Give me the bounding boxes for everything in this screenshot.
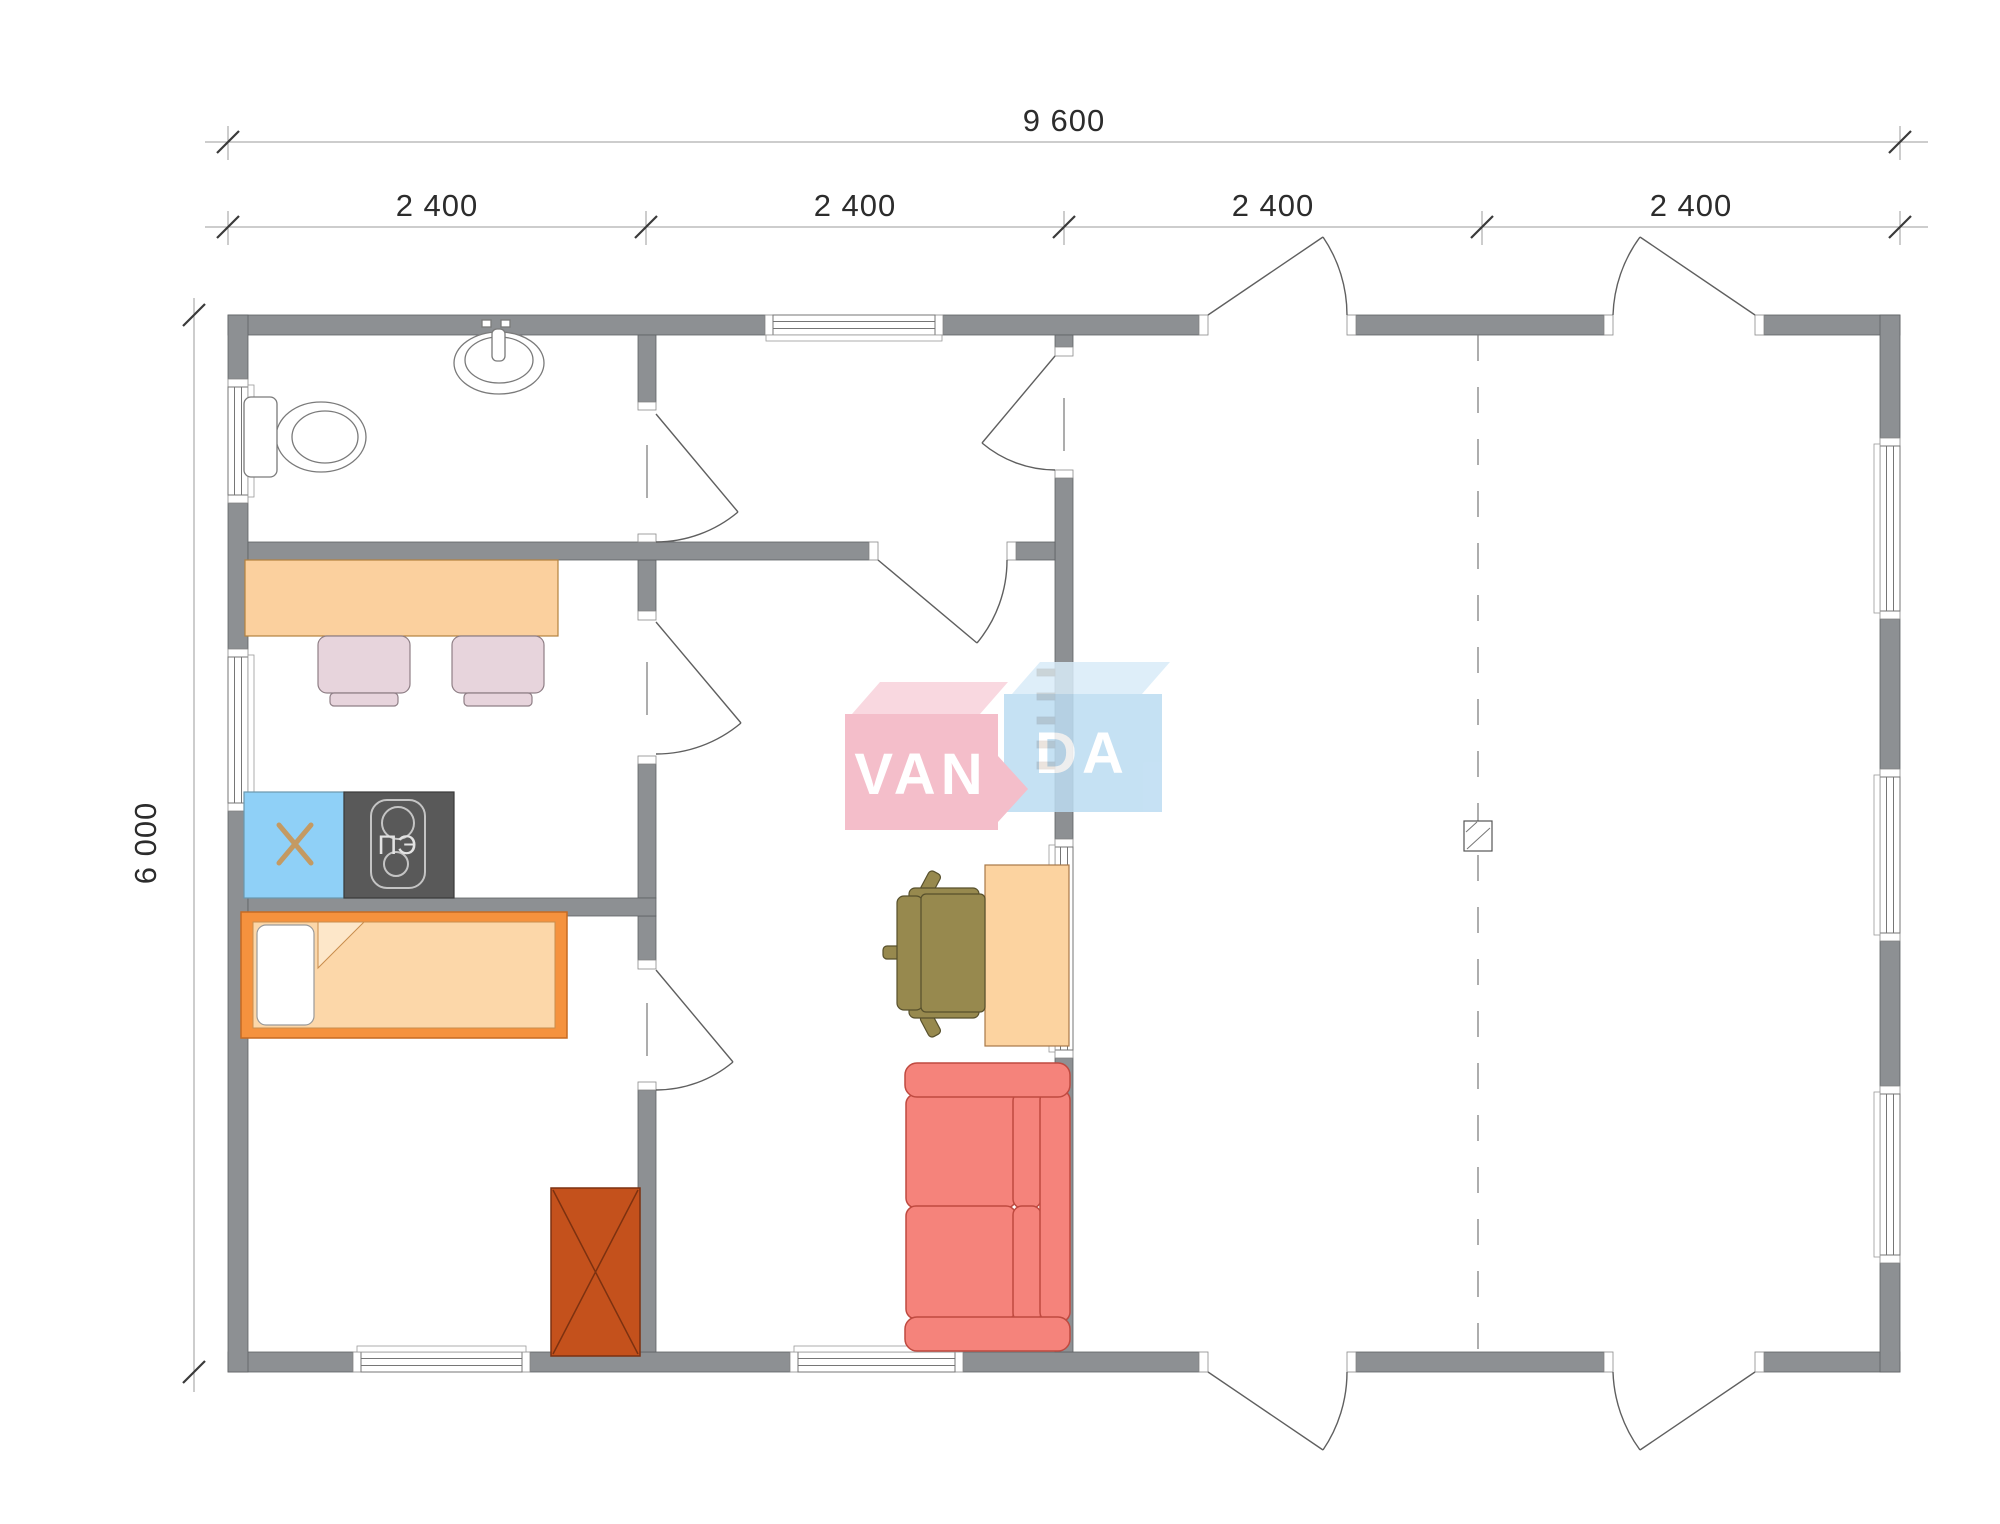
dining-chairs	[318, 636, 544, 706]
stove: ПЭ	[344, 792, 454, 898]
sofa-back-cushion	[1013, 1092, 1041, 1208]
sofa-seat-cushion	[906, 1206, 1016, 1319]
window	[228, 655, 254, 805]
wall	[638, 764, 656, 898]
sofa-backrest	[1040, 1090, 1070, 1322]
logo-text-da: DA	[1035, 721, 1129, 786]
window	[1874, 444, 1900, 613]
door-arc	[1208, 237, 1347, 315]
dimension-label-total-width: 9 600	[1023, 103, 1106, 138]
chimney	[1464, 821, 1492, 851]
wall	[1880, 315, 1900, 438]
logo-blue-top-face	[1012, 662, 1170, 694]
dimension-label-segment-4: 2 400	[1650, 188, 1733, 223]
office-chair-seat	[921, 894, 985, 1012]
wall	[638, 560, 656, 611]
wall	[1764, 315, 1900, 335]
dining-chair	[464, 693, 532, 706]
desk	[985, 865, 1069, 1046]
vanda-logo: VAN DA	[845, 662, 1170, 830]
wall	[1880, 619, 1900, 769]
window	[357, 1346, 526, 1372]
wall	[248, 542, 869, 560]
wall	[1764, 1352, 1900, 1372]
window	[1874, 1092, 1900, 1257]
logo-pink-top-face	[852, 682, 1008, 714]
wardrobe	[551, 1188, 640, 1356]
door-arc	[1208, 1372, 1347, 1450]
door-arc	[878, 560, 1007, 643]
wall	[943, 315, 1199, 335]
dimension-label-segment-2: 2 400	[814, 188, 897, 223]
floor-plan-drawing: 9 600 2 400 2 400 2 400 2 400 6 000	[0, 0, 2000, 1524]
window	[766, 315, 942, 341]
dining-chair	[452, 636, 544, 693]
single-bed	[241, 912, 567, 1038]
pillow	[257, 925, 314, 1025]
dining-chair	[330, 693, 398, 706]
dining-chair	[318, 636, 410, 693]
sofa-seat-cushion	[906, 1094, 1016, 1208]
kitchen-table	[245, 560, 558, 636]
wall	[1356, 315, 1604, 335]
wall	[1356, 1352, 1604, 1372]
sofa-back-cushion	[1013, 1206, 1041, 1322]
door-arc	[982, 356, 1055, 470]
sofa-armrest	[905, 1317, 1070, 1351]
wall	[1016, 542, 1055, 560]
wall	[1055, 335, 1073, 347]
wall	[1880, 941, 1900, 1086]
wall	[638, 916, 656, 960]
sofa-armrest	[905, 1063, 1070, 1097]
office-chair	[883, 870, 985, 1039]
wall	[228, 315, 248, 379]
dimension-label-segment-3: 2 400	[1232, 188, 1315, 223]
wall	[638, 335, 656, 402]
logo-text-van: VAN	[854, 742, 987, 807]
dimension-label-height: 6 000	[128, 802, 163, 885]
door-arc	[656, 622, 741, 754]
toilet	[244, 397, 366, 477]
dimension-label-segment-1: 2 400	[396, 188, 479, 223]
door-arc	[656, 414, 738, 542]
doors	[647, 237, 1755, 1450]
office-chair-backrest	[897, 896, 923, 1010]
wall	[1880, 1263, 1900, 1372]
window	[1874, 775, 1900, 935]
fridge	[244, 792, 344, 898]
door-arc	[1613, 237, 1755, 315]
floor-plan-page: 9 600 2 400 2 400 2 400 2 400 6 000	[0, 0, 2000, 1524]
sofa	[905, 1063, 1070, 1351]
wall	[963, 1352, 1199, 1372]
door-arc	[656, 970, 733, 1090]
stove-label: ПЭ	[378, 830, 417, 860]
door-arc	[1613, 1372, 1755, 1450]
